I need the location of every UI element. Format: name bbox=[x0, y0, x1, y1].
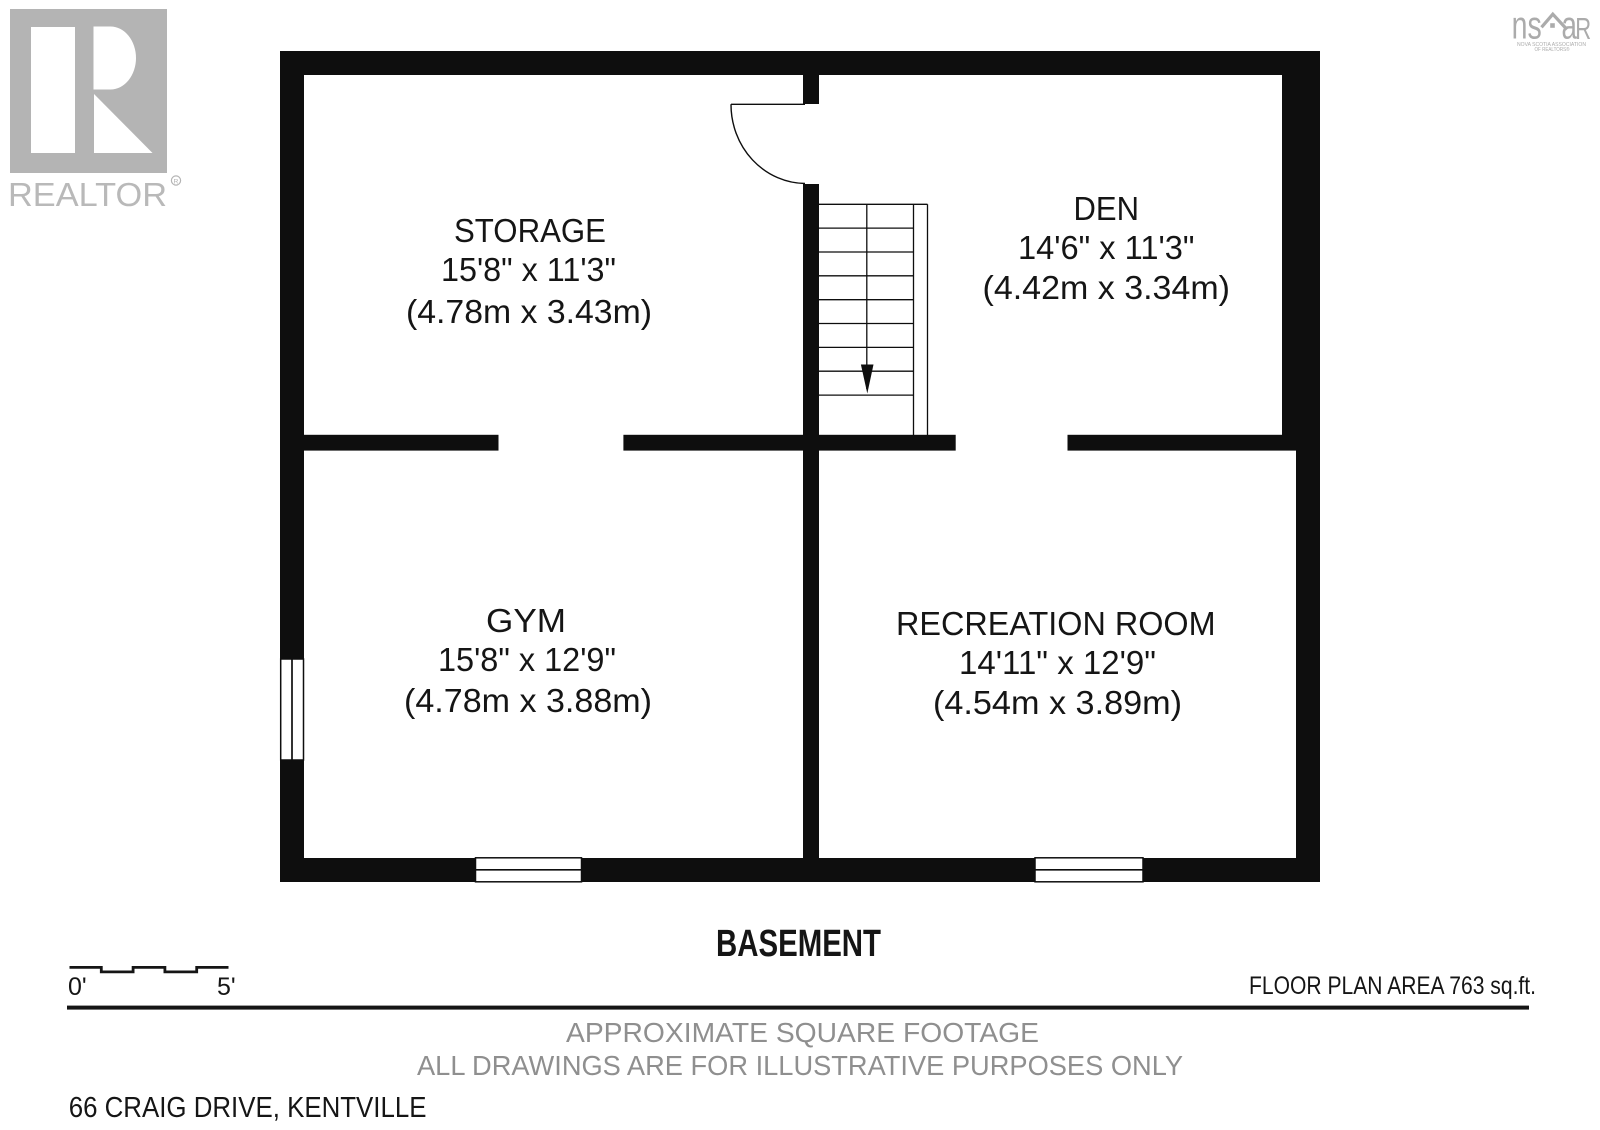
svg-text:(4.54m x 3.89m): (4.54m x 3.89m) bbox=[933, 685, 1182, 722]
svg-text:15'8" x 12'9": 15'8" x 12'9" bbox=[438, 642, 616, 679]
svg-text:(4.78m x 3.88m): (4.78m x 3.88m) bbox=[404, 683, 652, 720]
svg-text:FLOOR PLAN AREA 763 sq.ft.: FLOOR PLAN AREA 763 sq.ft. bbox=[1249, 972, 1536, 1000]
svg-text:0': 0' bbox=[68, 973, 87, 1001]
svg-text:(4.42m x 3.34m): (4.42m x 3.34m) bbox=[983, 270, 1231, 307]
svg-text:(4.78m x 3.43m): (4.78m x 3.43m) bbox=[406, 294, 652, 331]
svg-text:5': 5' bbox=[217, 973, 236, 1001]
svg-text:ALL DRAWINGS ARE FOR ILLUSTRAT: ALL DRAWINGS ARE FOR ILLUSTRATIVE PURPOS… bbox=[417, 1050, 1183, 1081]
svg-text:OF REALTORS®: OF REALTORS® bbox=[1535, 46, 1571, 53]
svg-text:GYM: GYM bbox=[486, 603, 566, 640]
svg-text:14'11" x 12'9": 14'11" x 12'9" bbox=[959, 645, 1156, 682]
svg-text:STORAGE: STORAGE bbox=[454, 213, 606, 250]
svg-text:DEN: DEN bbox=[1074, 191, 1140, 228]
svg-text:RECREATION ROOM: RECREATION ROOM bbox=[896, 606, 1216, 643]
svg-text:15'8" x 11'3": 15'8" x 11'3" bbox=[441, 252, 616, 289]
svg-text:BASEMENT: BASEMENT bbox=[716, 923, 881, 965]
svg-text:R: R bbox=[174, 178, 179, 185]
svg-text:REALTOR: REALTOR bbox=[8, 177, 167, 214]
svg-text:66 CRAIG DRIVE, KENTVILLE: 66 CRAIG DRIVE, KENTVILLE bbox=[69, 1092, 427, 1124]
svg-text:R: R bbox=[1575, 11, 1591, 46]
svg-text:APPROXIMATE SQUARE FOOTAGE: APPROXIMATE SQUARE FOOTAGE bbox=[566, 1017, 1039, 1048]
svg-text:14'6" x 11'3": 14'6" x 11'3" bbox=[1018, 230, 1195, 267]
